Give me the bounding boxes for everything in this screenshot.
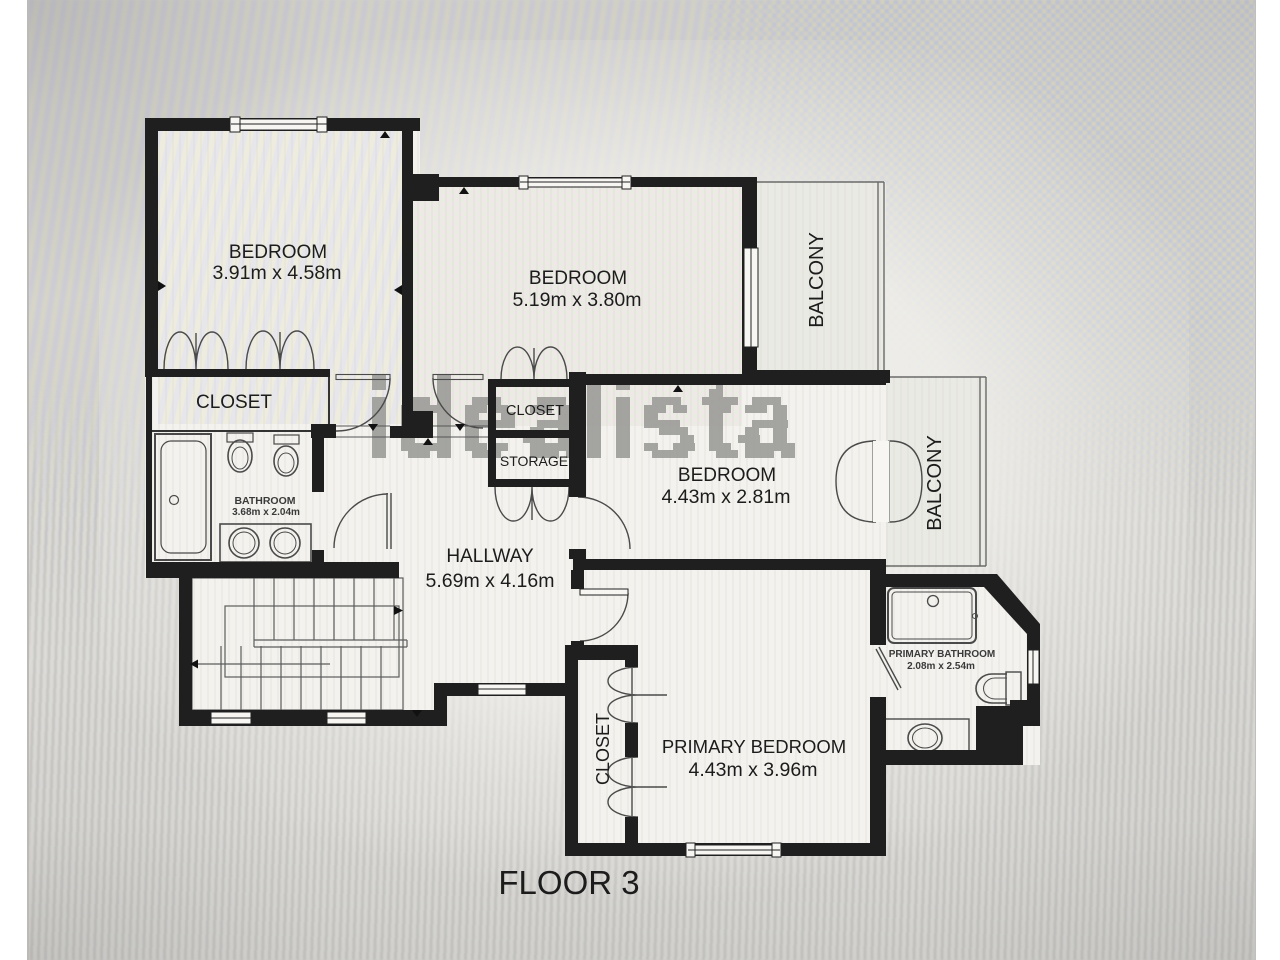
svg-text:BATHROOM: BATHROOM [234, 495, 295, 507]
svg-text:5.69m x 4.16m: 5.69m x 4.16m [426, 570, 555, 592]
svg-text:4.43m x 3.96m: 4.43m x 3.96m [689, 759, 818, 781]
svg-text:2.08m x 2.54m: 2.08m x 2.54m [907, 661, 975, 672]
svg-text:CLOSET: CLOSET [506, 403, 564, 419]
svg-text:PRIMARY BATHROOM: PRIMARY BATHROOM [889, 649, 995, 660]
svg-text:HALLWAY: HALLWAY [446, 546, 534, 567]
svg-text:CLOSET: CLOSET [196, 392, 272, 413]
svg-text:BEDROOM: BEDROOM [678, 465, 776, 486]
svg-text:3.68m x 2.04m: 3.68m x 2.04m [232, 507, 300, 518]
svg-text:3.91m x 4.58m: 3.91m x 4.58m [213, 262, 342, 284]
svg-text:FLOOR 3: FLOOR 3 [498, 864, 639, 901]
svg-text:BEDROOM: BEDROOM [529, 268, 627, 289]
svg-text:BEDROOM: BEDROOM [229, 242, 327, 263]
svg-text:CLOSET: CLOSET [593, 713, 613, 785]
svg-text:PRIMARY BEDROOM: PRIMARY BEDROOM [662, 736, 846, 757]
svg-text:BALCONY: BALCONY [924, 435, 946, 531]
svg-text:5.19m x 3.80m: 5.19m x 3.80m [513, 289, 642, 311]
svg-text:BALCONY: BALCONY [806, 232, 828, 328]
svg-text:4.43m x 2.81m: 4.43m x 2.81m [662, 486, 791, 508]
svg-text:STORAGE: STORAGE [500, 453, 568, 469]
